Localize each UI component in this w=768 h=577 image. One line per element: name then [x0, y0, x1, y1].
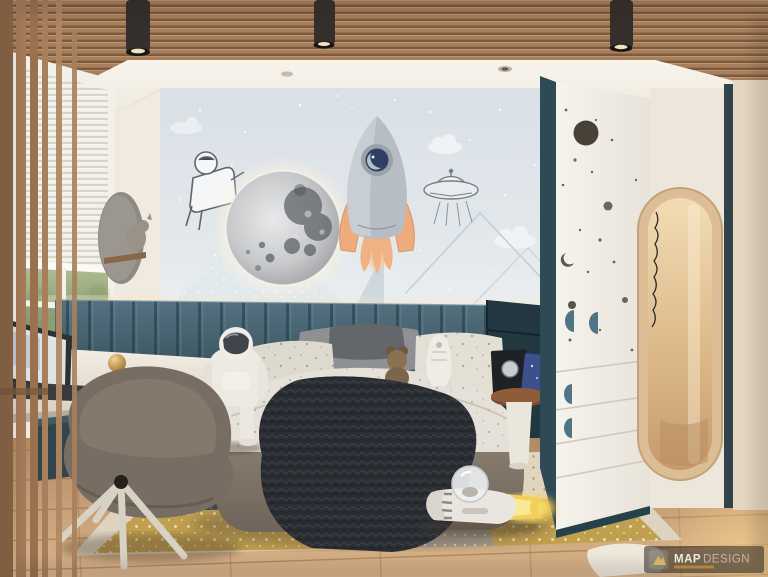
- wardrobe-side-teal: [540, 76, 556, 530]
- arched-mirror: [638, 188, 722, 480]
- watermark: MAP DESIGN: [644, 546, 764, 573]
- bedroom-render: MAP DESIGN: [0, 0, 768, 577]
- space-mural-wall: [160, 86, 548, 312]
- recessed-spot: [281, 71, 293, 76]
- mountain-triangle-logo-icon: [649, 550, 668, 569]
- watermark-brand-bold: MAP: [674, 554, 701, 566]
- watermark-tagline-bar: [674, 566, 714, 569]
- scene-canvas: MAP DESIGN: [0, 0, 768, 577]
- watermark-brand-light: DESIGN: [703, 554, 750, 566]
- wardrobe: [540, 76, 650, 538]
- right-section: [638, 80, 768, 510]
- corner-strip: [724, 84, 733, 508]
- moon-wall-lamp: [211, 156, 355, 300]
